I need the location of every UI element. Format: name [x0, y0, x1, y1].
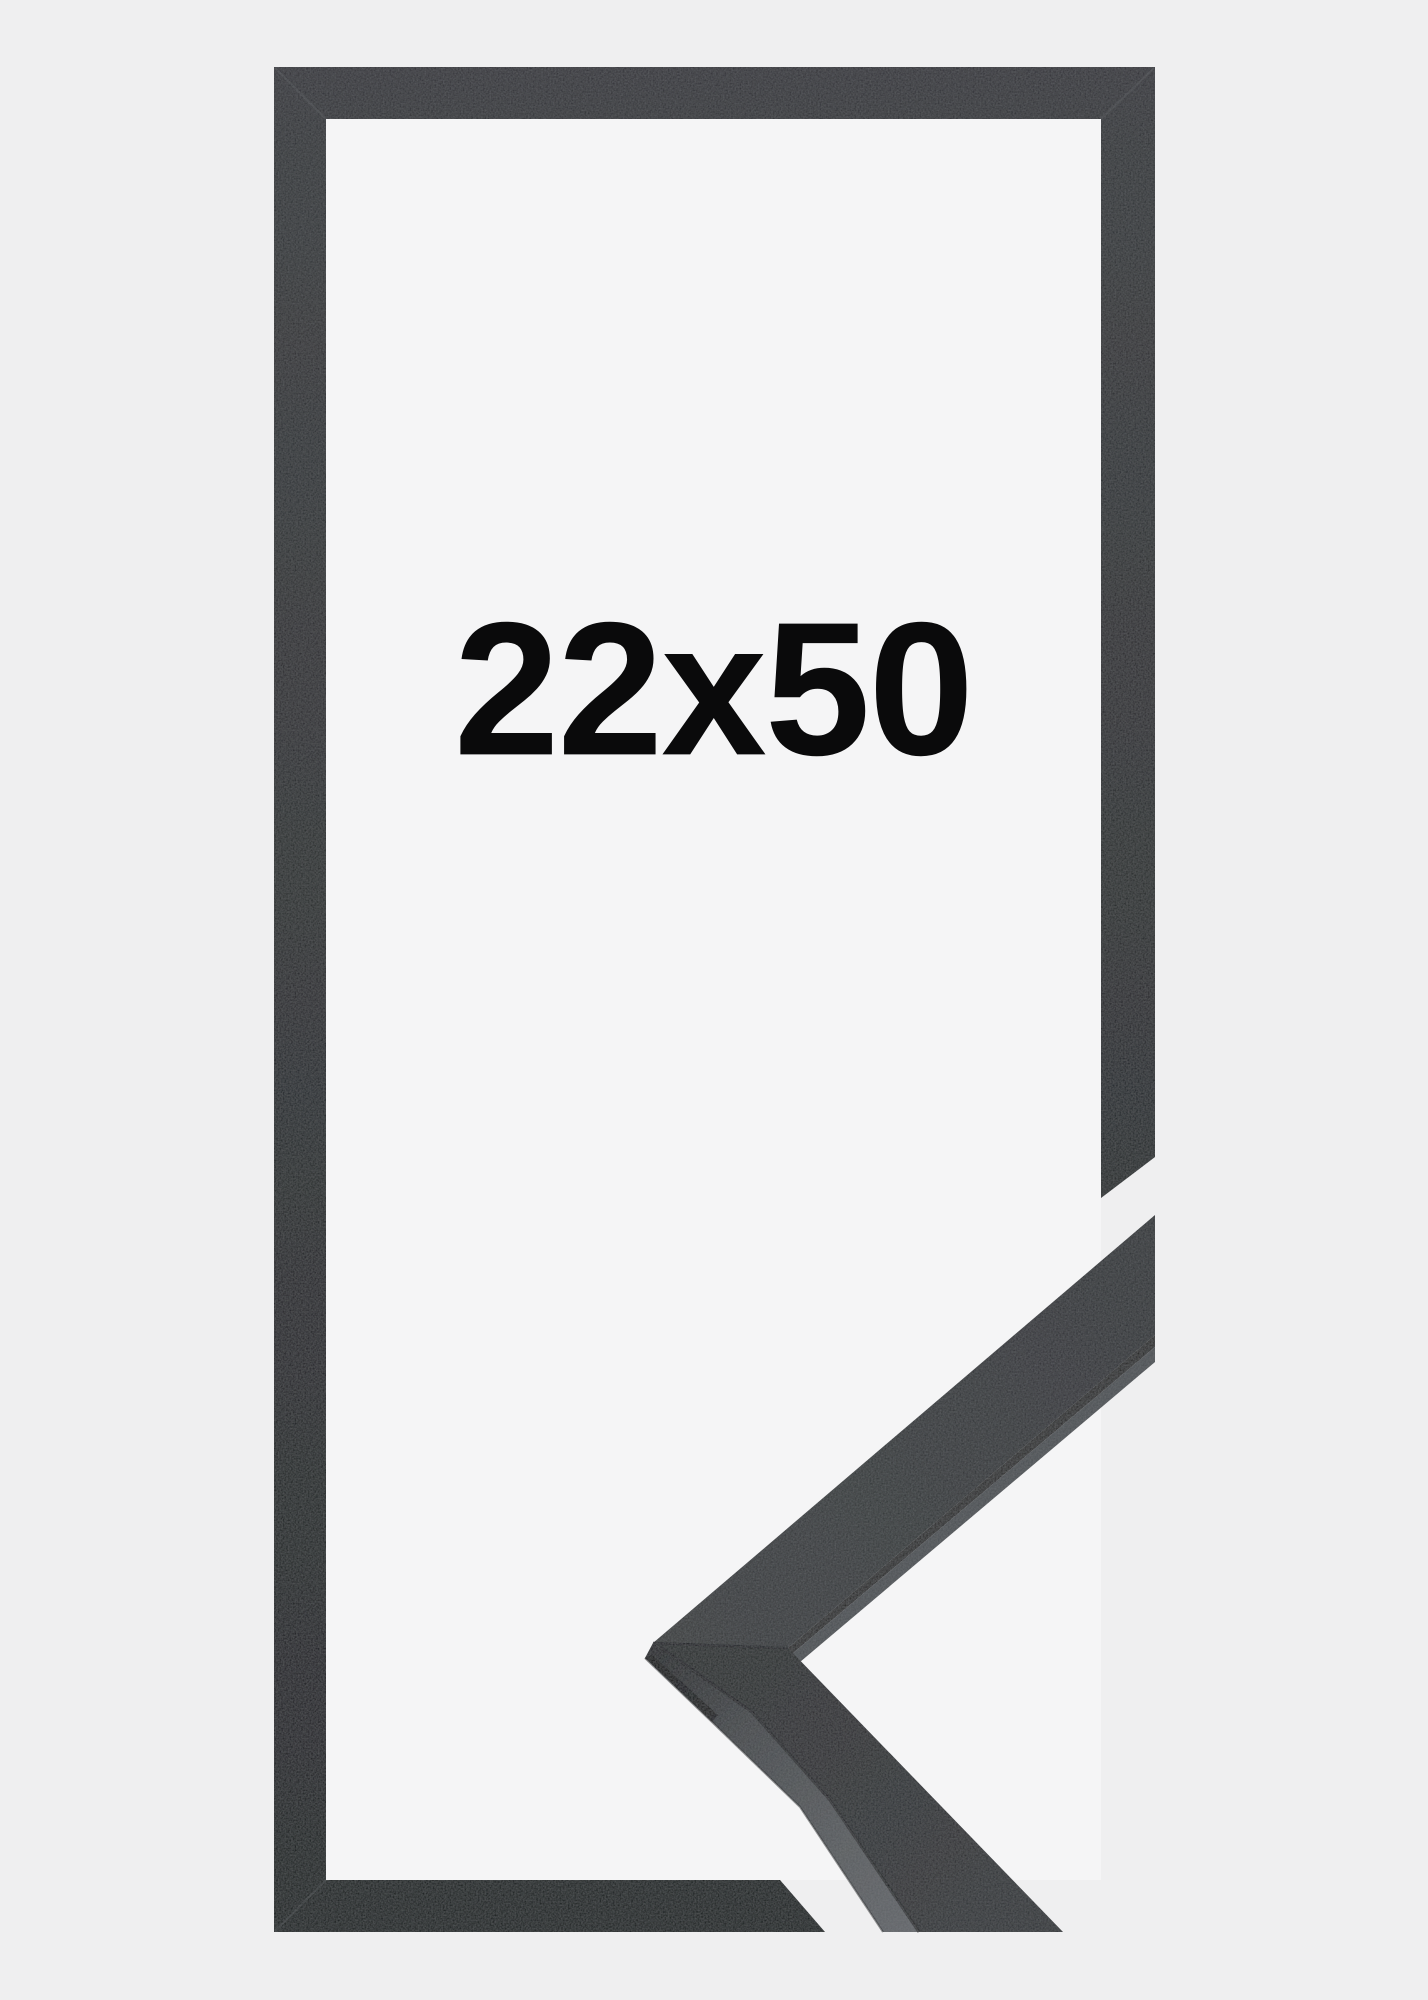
size-label: 22x50 [454, 594, 972, 784]
frame-bottom-bar [274, 1880, 825, 1932]
frame-illustration [0, 0, 1428, 2000]
frame-right-bar [1101, 67, 1155, 1198]
frame-left-bar [274, 67, 326, 1932]
product-image: 22x50 [0, 0, 1428, 2000]
frame-top-bar [274, 67, 1155, 119]
